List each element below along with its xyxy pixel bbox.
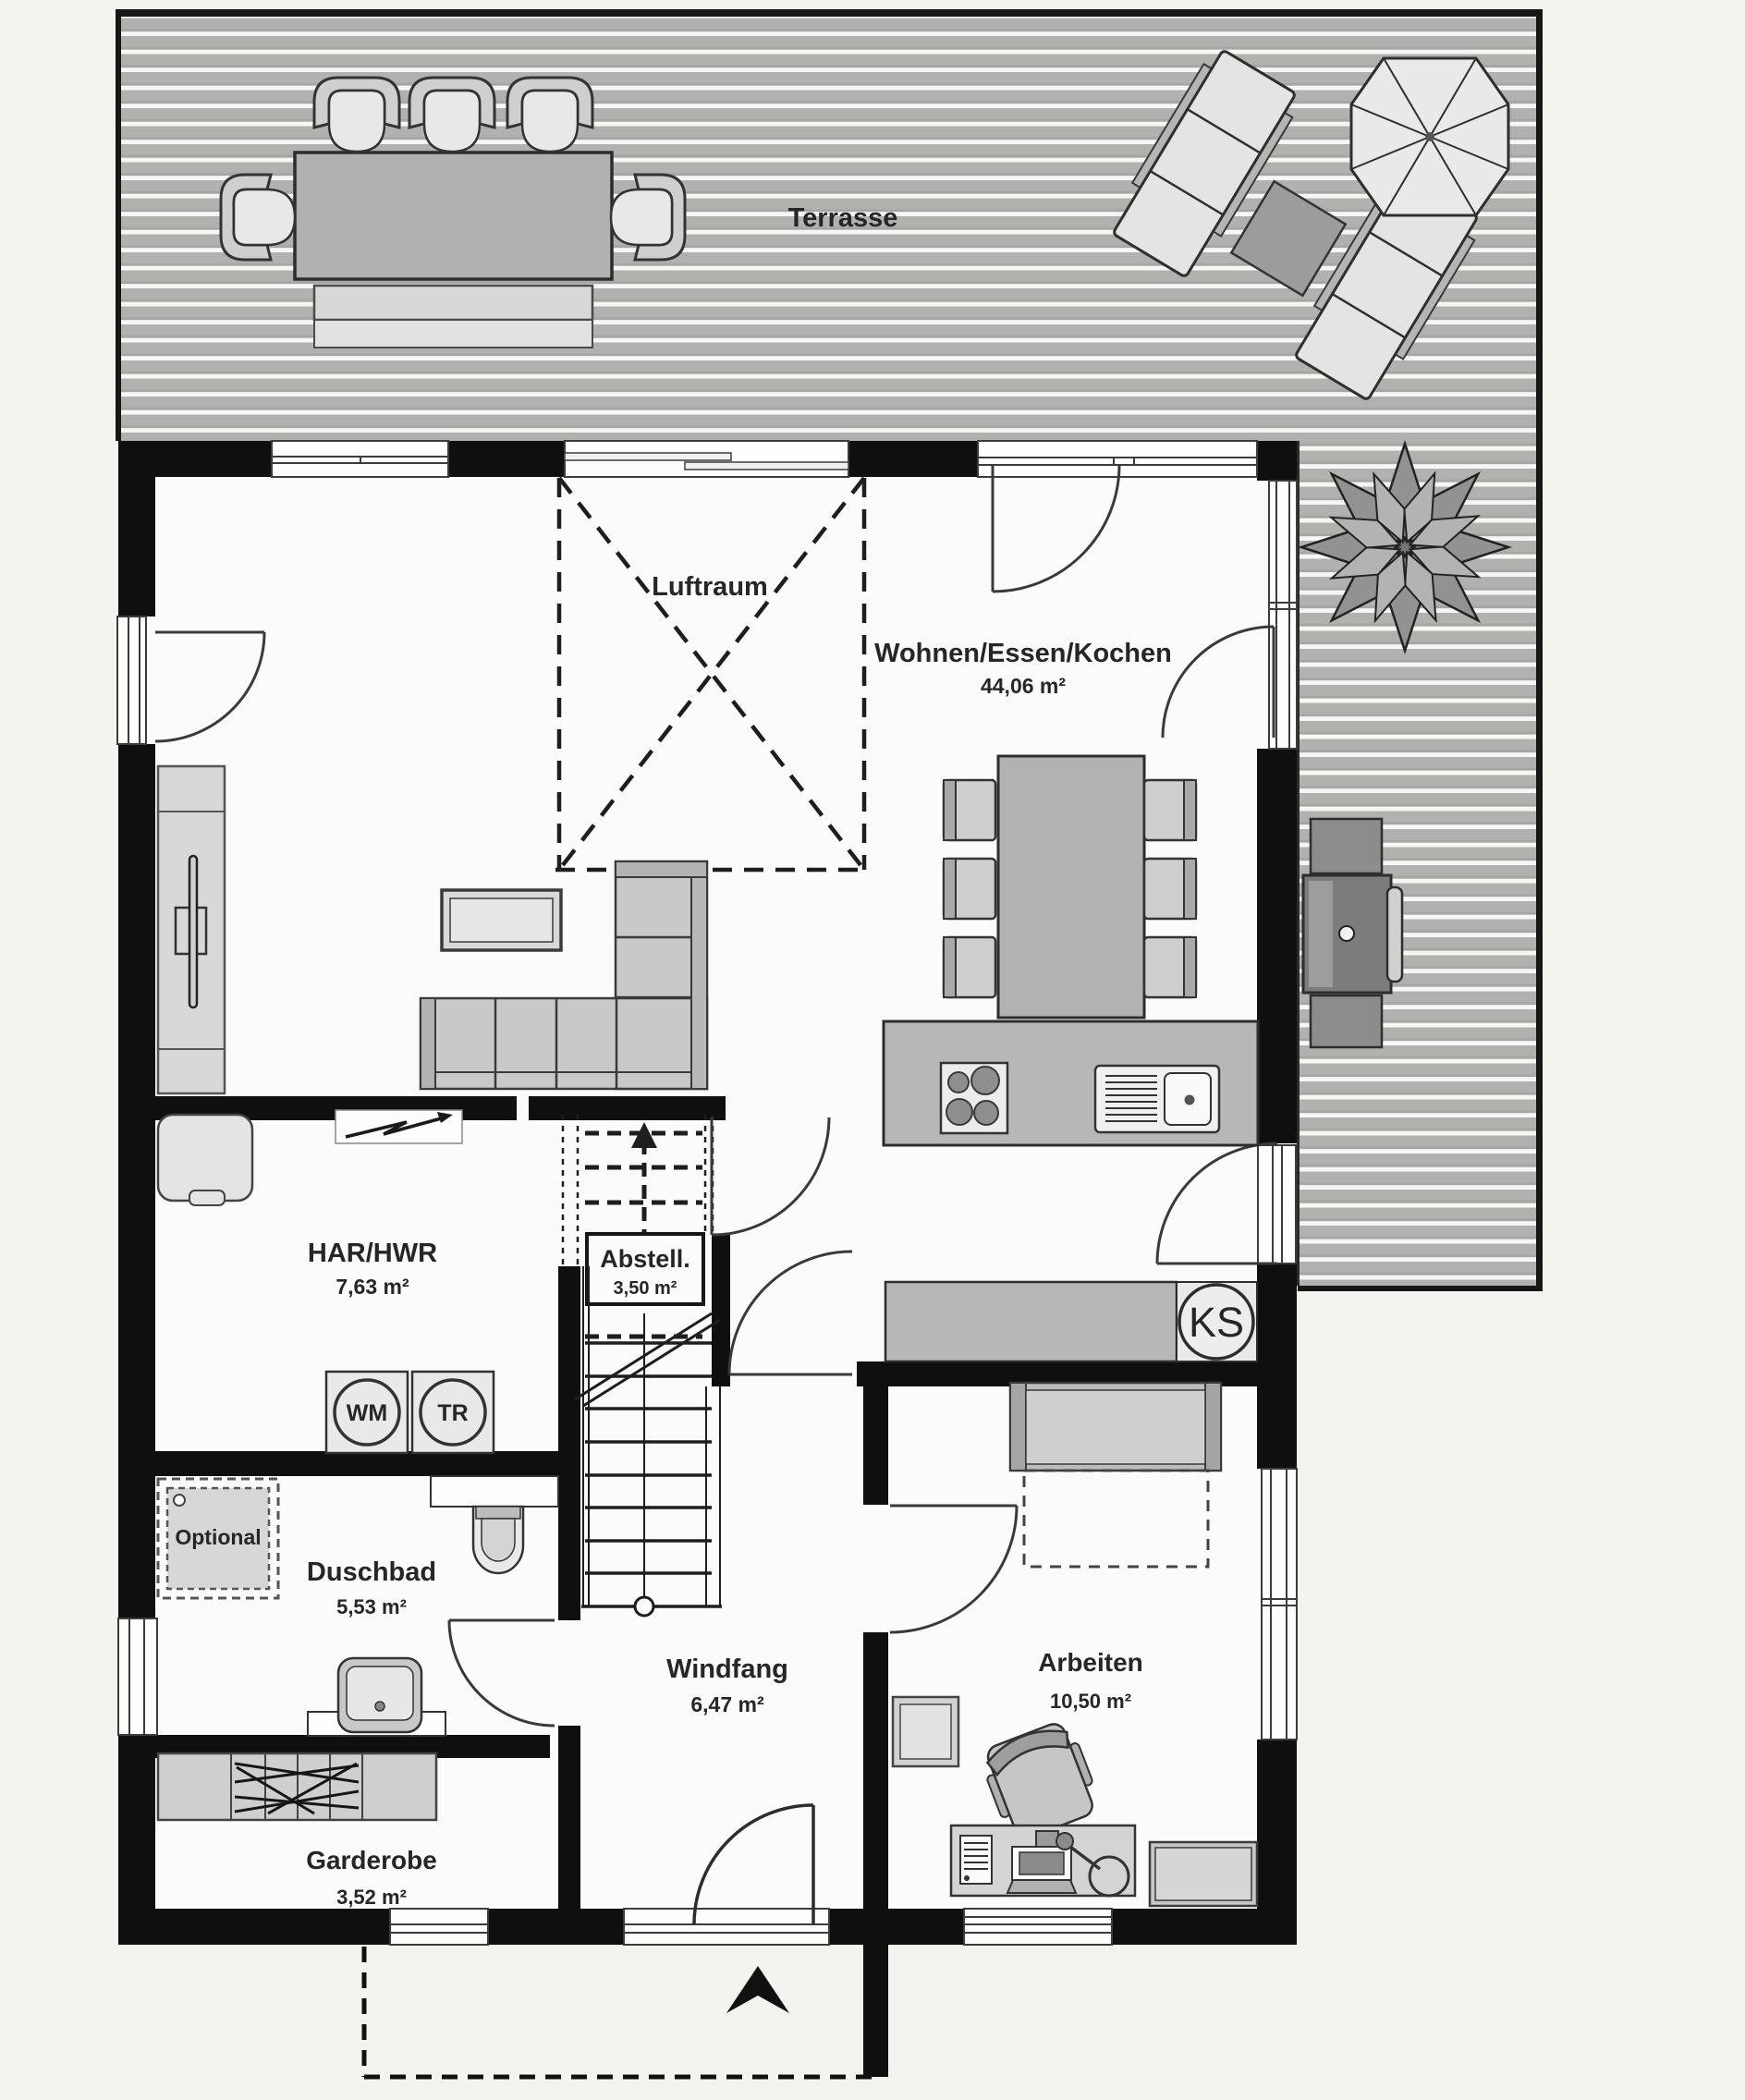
svg-text:Luftraum: Luftraum bbox=[652, 572, 768, 602]
svg-text:Terrasse: Terrasse bbox=[788, 203, 898, 233]
svg-text:Duschbad: Duschbad bbox=[307, 1557, 436, 1587]
svg-text:Wohnen/Essen/Kochen: Wohnen/Essen/Kochen bbox=[874, 639, 1172, 668]
svg-text:Garderobe: Garderobe bbox=[306, 1846, 437, 1874]
svg-text:Abstell.: Abstell. bbox=[600, 1245, 690, 1273]
svg-text:TR: TR bbox=[437, 1400, 468, 1426]
svg-text:44,06 m²: 44,06 m² bbox=[981, 674, 1066, 698]
svg-text:Arbeiten: Arbeiten bbox=[1038, 1648, 1143, 1677]
svg-text:3,50 m²: 3,50 m² bbox=[614, 1278, 677, 1299]
svg-text:3,52 m²: 3,52 m² bbox=[336, 1886, 407, 1909]
svg-text:HAR/HWR: HAR/HWR bbox=[308, 1239, 437, 1268]
svg-text:KS: KS bbox=[1189, 1299, 1244, 1346]
svg-text:Optional: Optional bbox=[175, 1525, 261, 1549]
svg-text:WM: WM bbox=[347, 1400, 387, 1426]
svg-text:6,47 m²: 6,47 m² bbox=[690, 1692, 764, 1716]
svg-text:7,63 m²: 7,63 m² bbox=[336, 1275, 409, 1299]
svg-text:10,50 m²: 10,50 m² bbox=[1050, 1690, 1131, 1713]
svg-text:Windfang: Windfang bbox=[666, 1654, 788, 1684]
svg-text:5,53 m²: 5,53 m² bbox=[336, 1595, 407, 1618]
